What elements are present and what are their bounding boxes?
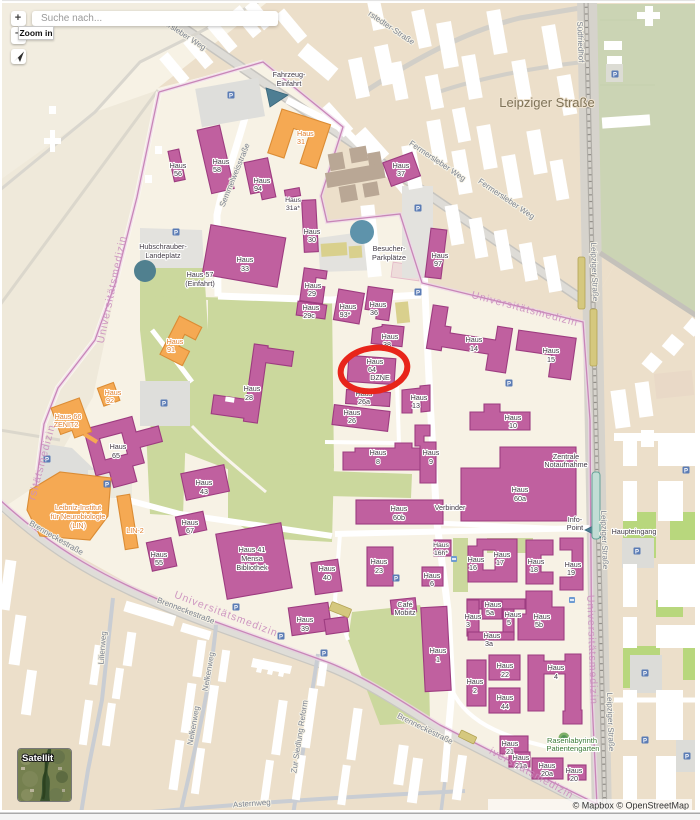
svg-text:91: 91 [167,345,175,354]
svg-text:LIN-2: LIN-2 [126,526,144,535]
svg-text:Mobitz: Mobitz [394,608,416,617]
svg-text:Point: Point [567,523,583,532]
svg-text:67: 67 [186,526,194,535]
svg-text:60b: 60b [393,513,405,522]
svg-text:Leipziger Straße: Leipziger Straße [499,95,594,110]
svg-text:Haus: Haus [466,335,483,344]
svg-text:55: 55 [155,558,163,567]
svg-text:94: 94 [254,184,262,193]
svg-text:Haus: Haus [497,661,514,670]
svg-text:P: P [416,207,420,213]
svg-text:6: 6 [430,579,434,588]
svg-text:Fahrzeug-: Fahrzeug- [273,70,306,79]
svg-text:Satellit: Satellit [22,753,54,764]
svg-text:10: 10 [509,421,517,430]
svg-text:Haus: Haus [196,478,213,487]
svg-text:92: 92 [106,396,114,405]
svg-text:Haus: Haus [497,693,514,702]
svg-text:1: 1 [436,655,440,664]
svg-text:Patientengarten: Patientengarten [547,744,600,753]
svg-text:19: 19 [567,568,575,577]
svg-text:26: 26 [348,416,356,425]
svg-text:60a: 60a [514,494,526,503]
svg-text:P: P [684,469,688,475]
svg-text:Landeplatz: Landeplatz [145,251,181,260]
svg-text:Haus: Haus [285,197,301,204]
svg-text:P: P [416,291,420,297]
svg-text:P: P [162,402,166,408]
svg-text:30: 30 [308,235,316,244]
svg-text:Verbinder: Verbinder [435,503,466,512]
svg-text:Haus: Haus [244,384,261,393]
svg-text:23: 23 [375,566,383,575]
svg-text:P: P [322,652,326,658]
svg-text:44: 44 [501,702,509,711]
svg-text:P: P [174,231,178,237]
svg-text:Haus: Haus [110,442,127,451]
svg-text:40: 40 [323,573,331,582]
svg-text:5b: 5b [535,620,543,629]
svg-text:Bibliothek: Bibliothek [236,563,268,572]
svg-text:Besucher-: Besucher- [373,244,406,253]
svg-text:13: 13 [412,401,420,410]
svg-text:(LIN): (LIN) [70,521,86,530]
svg-text:36: 36 [370,308,378,317]
svg-text:Haus: Haus [430,646,447,655]
svg-text:29: 29 [308,289,316,298]
svg-text:4: 4 [554,672,558,681]
svg-text:17: 17 [496,558,504,567]
svg-text:für Neurobiologie: für Neurobiologie [51,512,106,521]
svg-text:16: 16 [469,563,477,572]
svg-text:P: P [394,577,398,583]
svg-text:Haus: Haus [370,448,387,457]
svg-text:5a: 5a [486,608,494,617]
svg-text:15: 15 [547,355,555,364]
svg-text:Leibniz-Institut: Leibniz-Institut [55,503,101,512]
svg-text:Haus: Haus [237,255,254,264]
svg-text:P: P [105,483,109,489]
svg-text:(Einfahrt): (Einfahrt) [185,279,215,288]
svg-text:Haus 57: Haus 57 [187,270,214,279]
svg-text:39: 39 [301,624,309,633]
svg-text:56: 56 [174,169,182,178]
svg-text:43: 43 [200,487,208,496]
svg-text:Einfahrt: Einfahrt [277,79,302,88]
svg-text:22: 22 [501,670,509,679]
svg-text:Haus: Haus [548,663,565,672]
svg-text:Haus: Haus [467,677,484,686]
svg-text:93*: 93* [340,310,351,319]
svg-text:9: 9 [429,457,433,466]
svg-text:P: P [613,73,617,79]
svg-text:P: P [507,382,511,388]
svg-text:2: 2 [473,686,477,695]
svg-text:16h*: 16h* [434,550,448,557]
svg-text:Mensa: Mensa [241,554,263,563]
svg-text:Haus: Haus [543,346,560,355]
svg-text:Haus: Haus [297,615,314,624]
svg-text:Parkplätze: Parkplätze [372,253,406,262]
svg-text:97: 97 [434,259,442,268]
svg-text:Hubschrauber-: Hubschrauber- [139,242,187,251]
svg-text:Haus: Haus [433,542,449,549]
svg-text:P: P [643,739,647,745]
svg-text:Haus: Haus [371,557,388,566]
svg-text:31a*: 31a* [286,205,300,212]
svg-text:26a: 26a [358,397,370,406]
svg-text:Südfriedhof: Südfriedhof [575,21,585,63]
svg-text:5: 5 [507,618,511,627]
svg-text:P: P [229,94,233,100]
svg-text:© Mapbox © OpenStreetMap: © Mapbox © OpenStreetMap [573,801,689,811]
svg-text:P: P [685,755,689,761]
svg-text:Notaufnahme: Notaufnahme [544,460,587,469]
svg-text:31: 31 [297,137,305,146]
svg-text:DZNE: DZNE [370,373,390,382]
svg-text:P: P [635,550,639,556]
svg-text:65: 65 [112,451,120,460]
svg-text:8: 8 [376,457,380,466]
svg-text:58: 58 [213,165,221,174]
svg-text:Haus 41: Haus 41 [239,545,266,554]
svg-text:29c: 29c [303,311,315,320]
svg-text:20: 20 [570,774,578,783]
svg-text:Haupteingang: Haupteingang [612,527,657,536]
svg-text:18: 18 [530,565,538,574]
svg-text:28: 28 [245,393,253,402]
svg-text:Haus: Haus [391,504,408,513]
svg-text:Haus: Haus [512,485,529,494]
svg-text:P: P [279,635,283,641]
svg-text:33: 33 [241,264,249,273]
svg-text:3a: 3a [485,639,493,648]
svg-text:3: 3 [466,620,470,629]
svg-text:P: P [643,672,647,678]
svg-text:Haus: Haus [423,448,440,457]
svg-text:Haus: Haus [319,564,336,573]
svg-text:14: 14 [470,344,478,353]
svg-text:37: 37 [397,169,405,178]
